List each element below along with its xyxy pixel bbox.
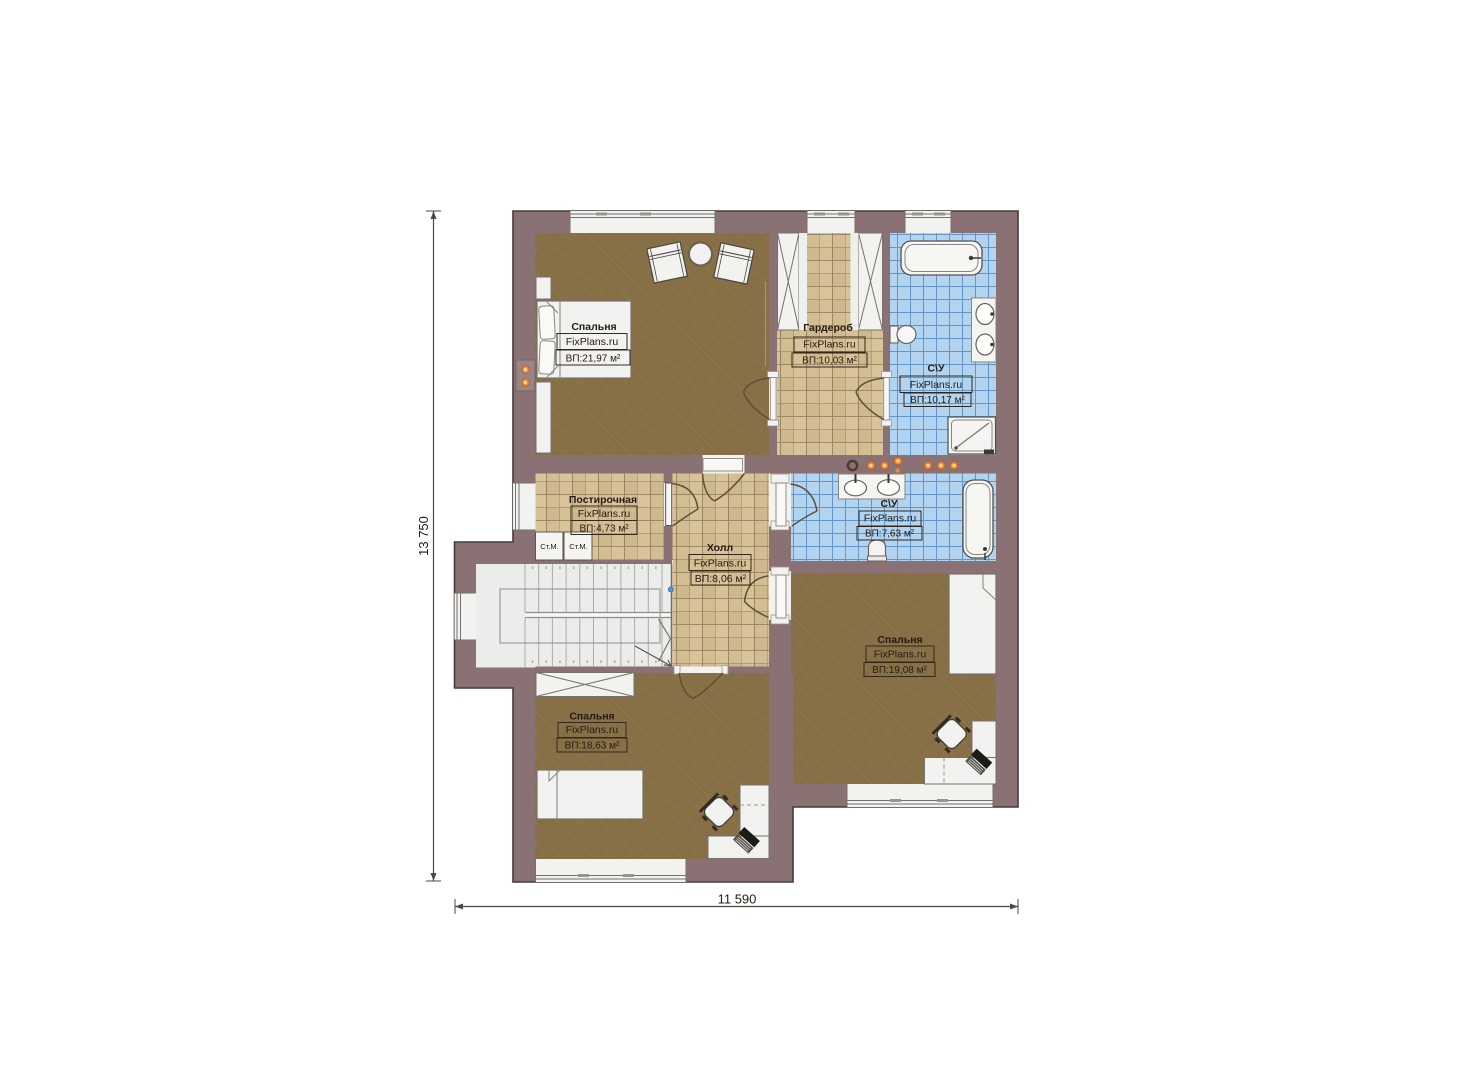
svg-text:FixPlans.ru: FixPlans.ru — [566, 336, 619, 348]
svg-text:Постирочная: Постирочная — [569, 494, 637, 506]
svg-text:FixPlans.ru: FixPlans.ru — [578, 508, 631, 520]
svg-text:11 590: 11 590 — [718, 892, 757, 907]
svg-text:Ст.М.: Ст.М. — [569, 542, 587, 551]
svg-text:ВП:19,08 м²: ВП:19,08 м² — [872, 665, 927, 676]
svg-text:Спальня: Спальня — [877, 634, 922, 646]
svg-text:FixPlans.ru: FixPlans.ru — [566, 724, 619, 736]
svg-text:ВП:7,63 м²: ВП:7,63 м² — [865, 529, 915, 540]
svg-text:С\У: С\У — [880, 498, 898, 510]
svg-text:FixPlans.ru: FixPlans.ru — [803, 339, 856, 351]
svg-text:FixPlans.ru: FixPlans.ru — [694, 558, 747, 570]
svg-text:С\У: С\У — [927, 363, 945, 375]
svg-text:ВП:21,97 м²: ВП:21,97 м² — [566, 354, 621, 365]
svg-text:Спальня: Спальня — [569, 711, 614, 723]
svg-text:Ст.М.: Ст.М. — [540, 542, 558, 551]
svg-text:FixPlans.ru: FixPlans.ru — [874, 649, 927, 661]
svg-text:ВП:4,73 м²: ВП:4,73 м² — [579, 524, 629, 535]
svg-text:ВП:10,03 м²: ВП:10,03 м² — [802, 356, 857, 367]
svg-text:ВП:8,06 м²: ВП:8,06 м² — [695, 573, 747, 585]
svg-text:Спальня: Спальня — [571, 321, 616, 333]
svg-text:13 750: 13 750 — [416, 516, 431, 556]
svg-text:FixPlans.ru: FixPlans.ru — [910, 379, 963, 391]
svg-text:ВП:18,63 м²: ВП:18,63 м² — [565, 741, 620, 752]
svg-text:ВП:10,17 м²: ВП:10,17 м² — [910, 395, 965, 406]
svg-text:Гардероб: Гардероб — [803, 322, 853, 334]
svg-text:Холл: Холл — [707, 542, 733, 554]
svg-text:FixPlans.ru: FixPlans.ru — [864, 513, 917, 525]
